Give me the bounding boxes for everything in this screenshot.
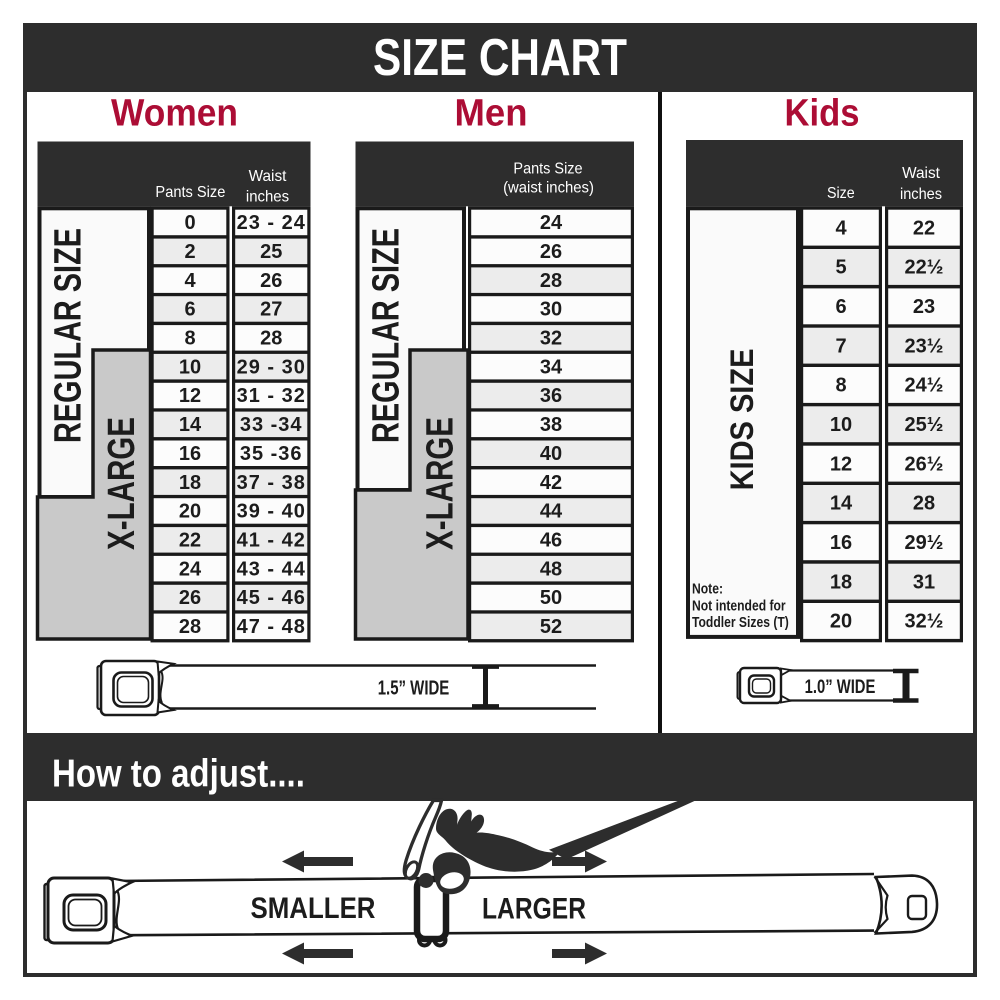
svg-text:37 - 38: 37 - 38	[237, 472, 306, 494]
svg-text:18: 18	[179, 472, 201, 494]
svg-text:50: 50	[540, 587, 562, 609]
svg-text:46: 46	[540, 530, 562, 552]
svg-text:31: 31	[913, 571, 935, 593]
svg-text:44: 44	[540, 501, 563, 523]
svg-text:29 - 30: 29 - 30	[237, 356, 306, 378]
svg-text:12: 12	[179, 385, 201, 407]
svg-text:47 - 48: 47 - 48	[237, 616, 306, 638]
svg-text:6: 6	[835, 296, 846, 318]
svg-text:REGULAR SIZE: REGULAR SIZE	[365, 228, 408, 443]
svg-text:31 - 32: 31 - 32	[237, 385, 306, 407]
svg-text:Women: Women	[111, 91, 238, 133]
svg-text:32: 32	[540, 328, 562, 350]
svg-text:22: 22	[913, 217, 935, 239]
svg-text:14: 14	[830, 493, 853, 515]
svg-text:1.5” WIDE: 1.5” WIDE	[378, 676, 450, 699]
svg-text:36: 36	[540, 385, 562, 407]
svg-text:SIZE CHART: SIZE CHART	[373, 29, 627, 87]
svg-text:X-LARGE: X-LARGE	[419, 417, 461, 550]
svg-text:REGULAR SIZE: REGULAR SIZE	[47, 228, 90, 443]
svg-text:inches: inches	[246, 188, 290, 205]
svg-text:25: 25	[260, 241, 282, 263]
svg-text:7: 7	[835, 335, 846, 357]
svg-text:4: 4	[835, 217, 847, 239]
svg-text:24½: 24½	[905, 375, 944, 397]
svg-text:Pants Size: Pants Size	[155, 184, 225, 201]
svg-text:14: 14	[179, 414, 202, 436]
svg-text:30: 30	[540, 299, 562, 321]
svg-text:42: 42	[540, 472, 562, 494]
svg-text:26: 26	[260, 270, 282, 292]
svg-text:(waist inches): (waist inches)	[503, 179, 594, 196]
svg-text:22: 22	[179, 530, 201, 552]
svg-text:10: 10	[830, 414, 852, 436]
svg-text:24: 24	[179, 558, 202, 580]
svg-text:16: 16	[179, 443, 201, 465]
svg-text:38: 38	[540, 414, 562, 436]
svg-text:45 - 46: 45 - 46	[237, 587, 306, 609]
svg-text:inches: inches	[900, 186, 942, 204]
svg-text:27: 27	[260, 299, 282, 321]
svg-text:23: 23	[913, 296, 935, 318]
svg-text:32½: 32½	[905, 611, 944, 633]
svg-text:33 -34: 33 -34	[240, 414, 303, 436]
svg-text:KIDS SIZE: KIDS SIZE	[725, 349, 761, 491]
svg-text:Toddler Sizes (T): Toddler Sizes (T)	[692, 614, 789, 630]
svg-text:25½: 25½	[905, 414, 944, 436]
svg-text:16: 16	[830, 532, 852, 554]
svg-text:Size: Size	[827, 186, 855, 203]
svg-text:How to adjust....: How to adjust....	[52, 751, 305, 795]
svg-text:4: 4	[184, 270, 196, 292]
svg-text:Men: Men	[455, 91, 528, 134]
svg-text:2: 2	[184, 241, 195, 263]
svg-text:52: 52	[540, 616, 562, 638]
svg-text:18: 18	[830, 571, 852, 593]
svg-text:22½: 22½	[905, 257, 944, 279]
svg-text:6: 6	[184, 299, 195, 321]
svg-text:20: 20	[179, 501, 201, 523]
svg-text:X-LARGE: X-LARGE	[101, 417, 143, 550]
svg-text:24: 24	[540, 212, 563, 234]
svg-text:20: 20	[830, 611, 852, 633]
svg-text:29½: 29½	[905, 532, 944, 554]
svg-text:48: 48	[540, 558, 562, 580]
svg-text:28: 28	[179, 616, 201, 638]
svg-text:Note:: Note:	[692, 581, 723, 597]
svg-text:34: 34	[540, 356, 563, 378]
svg-text:10: 10	[179, 356, 201, 378]
svg-text:Not intended for: Not intended for	[692, 598, 786, 614]
svg-text:SMALLER: SMALLER	[251, 891, 376, 924]
svg-text:Kids: Kids	[785, 91, 860, 134]
svg-text:8: 8	[835, 375, 846, 397]
svg-text:Waist: Waist	[249, 168, 287, 185]
svg-text:12: 12	[830, 453, 852, 475]
svg-text:28: 28	[913, 493, 935, 515]
svg-text:28: 28	[540, 270, 562, 292]
svg-text:8: 8	[184, 328, 195, 350]
svg-text:26: 26	[179, 587, 201, 609]
svg-text:5: 5	[835, 257, 846, 279]
svg-text:Waist: Waist	[902, 165, 940, 182]
svg-text:40: 40	[540, 443, 562, 465]
svg-text:1.0” WIDE: 1.0” WIDE	[805, 676, 876, 697]
svg-text:35 -36: 35 -36	[240, 443, 303, 465]
svg-text:39 - 40: 39 - 40	[237, 501, 306, 523]
svg-text:23½: 23½	[905, 335, 944, 357]
svg-text:Pants Size: Pants Size	[513, 160, 582, 178]
svg-text:26: 26	[540, 241, 562, 263]
svg-text:41 - 42: 41 - 42	[237, 530, 306, 552]
svg-text:0: 0	[184, 212, 195, 234]
svg-text:28: 28	[260, 328, 282, 350]
svg-text:LARGER: LARGER	[482, 891, 586, 925]
svg-text:23 - 24: 23 - 24	[237, 212, 306, 234]
svg-text:43 - 44: 43 - 44	[237, 558, 306, 580]
svg-text:26½: 26½	[905, 453, 944, 475]
